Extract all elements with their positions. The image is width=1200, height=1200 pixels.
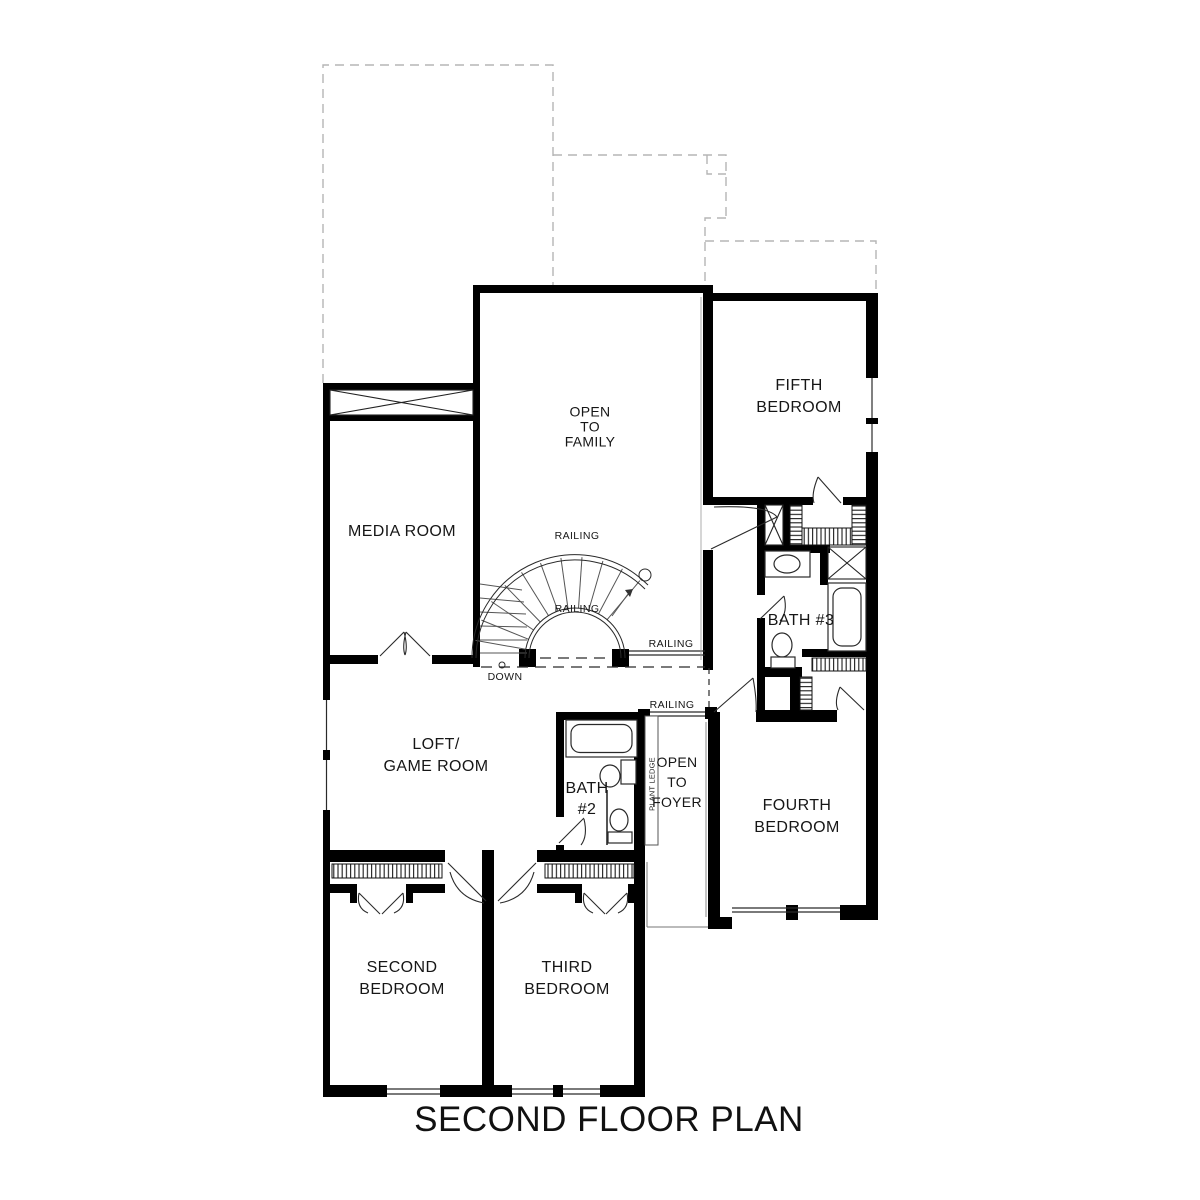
room-label-fifth-bedroom: FIFTH BEDROOM (756, 375, 841, 419)
room-label-open-to-family: OPEN TO FAMILY (565, 405, 616, 450)
room-label-open-to-foyer: OPEN TO FOYER (652, 752, 702, 812)
floor-plan-page: MEDIA ROOM OPEN TO FAMILY FIFTH BEDROOM … (0, 0, 1200, 1200)
floor-plan-drawing (0, 0, 1200, 1200)
room-label-bath-3: BATH #3 (768, 611, 835, 631)
room-label-loft-game-room: LOFT/ GAME ROOM (384, 734, 489, 778)
railing-label-stair-inner: RAILING (555, 603, 600, 615)
room-label-media-room: MEDIA ROOM (348, 522, 456, 542)
room-label-third-bedroom: THIRD BEDROOM (524, 957, 609, 1001)
room-label-second-bedroom: SECOND BEDROOM (359, 957, 444, 1001)
plan-title: SECOND FLOOR PLAN (414, 1100, 804, 1140)
down-label: DOWN (488, 671, 523, 683)
room-label-fourth-bedroom: FOURTH BEDROOM (754, 795, 839, 839)
railing-label-stair-outer: RAILING (555, 530, 600, 542)
room-label-bath-2: BATH #2 (565, 778, 608, 820)
railing-label-hall-lower: RAILING (650, 699, 695, 711)
roof-outline-dashed (323, 65, 876, 383)
railing-label-hall-upper: RAILING (649, 638, 694, 650)
plant-ledge-label: PLANT LEDGE (647, 757, 656, 811)
